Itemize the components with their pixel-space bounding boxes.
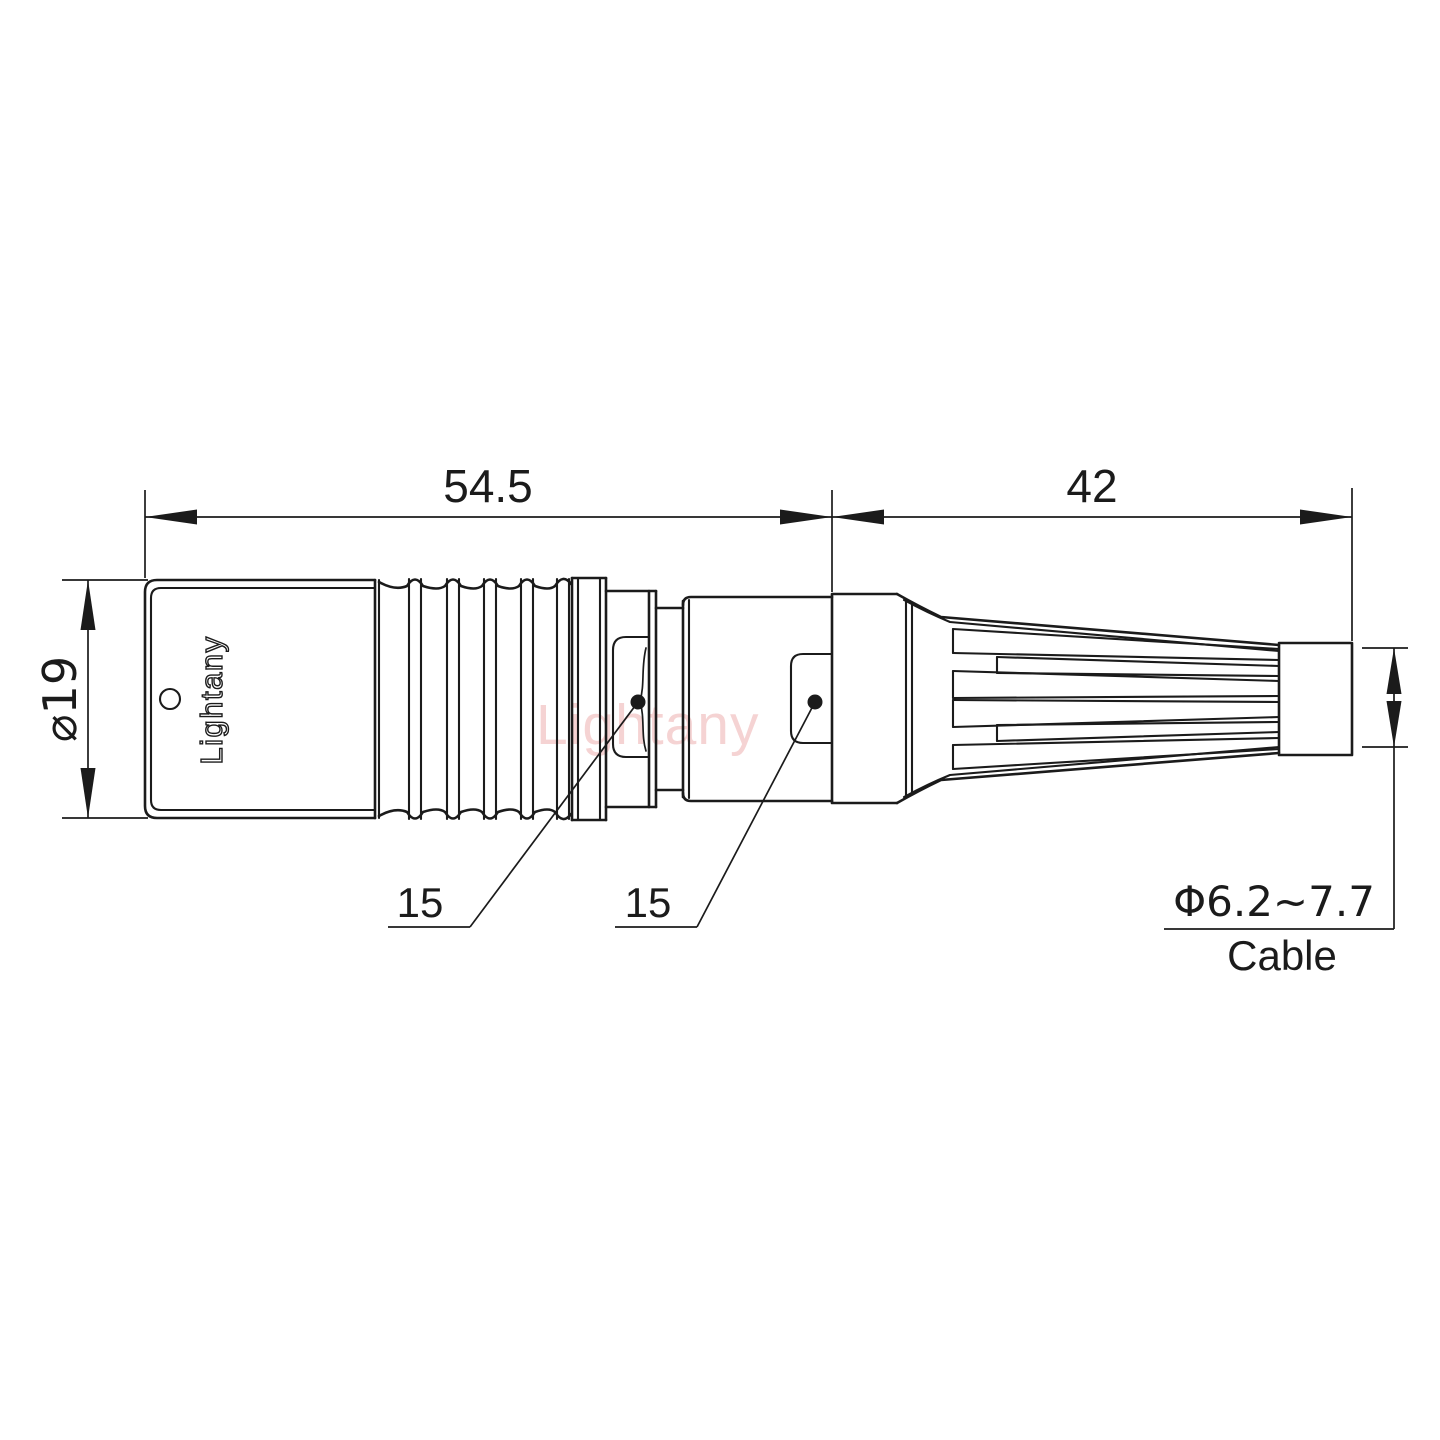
bellows-grip	[379, 578, 606, 820]
arrowhead	[81, 768, 96, 818]
technical-drawing-page: Lightany Lightany	[0, 0, 1440, 1440]
arrowhead	[145, 510, 197, 525]
dimension-body-diameter-value: ⌀19	[33, 656, 87, 742]
cable-collar	[1279, 643, 1352, 755]
arrowhead	[81, 580, 96, 630]
arrowhead	[1300, 510, 1352, 525]
panel-hole	[160, 689, 180, 709]
connector-dimension-drawing: Lightany Lightany	[0, 0, 1440, 1440]
dimension-front-length: 54.5	[145, 460, 832, 592]
dimension-rear-length-value: 42	[1066, 460, 1117, 512]
nut-flat-dimension-left: 15	[397, 879, 444, 926]
cable-label: Cable	[1227, 932, 1337, 979]
boot-flex-fingers	[953, 629, 1279, 769]
connector-body: Lightany	[145, 580, 379, 818]
dimension-rear-length: 42	[832, 460, 1352, 641]
cable-diameter-range: Φ6.2~7.7	[1173, 877, 1375, 926]
dimension-cable: Φ6.2~7.7 Cable	[1164, 648, 1408, 979]
dimension-body-diameter: ⌀19	[33, 580, 148, 818]
arrowhead	[1387, 648, 1402, 694]
strain-relief-boot	[832, 594, 1352, 803]
arrowhead	[832, 510, 884, 525]
body-logo: Lightany	[194, 635, 229, 764]
dimension-front-length-value: 54.5	[443, 460, 533, 512]
arrowhead	[1387, 701, 1402, 747]
arrowhead	[780, 510, 832, 525]
nut-flat-dimension-right: 15	[625, 879, 672, 926]
